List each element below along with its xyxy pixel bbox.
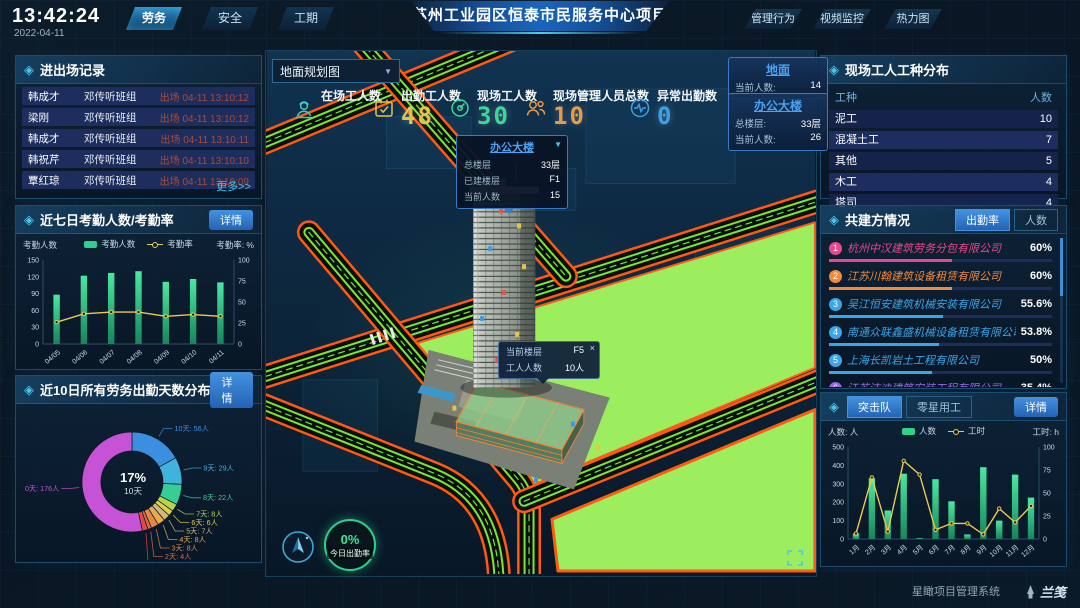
svg-text:7月: 7月 bbox=[943, 543, 956, 556]
today-attendance-rate-badge: 0% 今日出勤率 bbox=[324, 519, 376, 571]
svg-text:60: 60 bbox=[31, 308, 39, 315]
svg-text:04/09: 04/09 bbox=[153, 349, 171, 366]
entry-exit-panel: ◈ 进出场记录 韩成才 邓传听班组 出场 04-11 13:10:12梁刚 邓传… bbox=[15, 55, 262, 199]
svg-text:120: 120 bbox=[27, 274, 39, 281]
svg-text:50: 50 bbox=[1043, 491, 1051, 498]
pulse-icon bbox=[628, 96, 652, 120]
svg-text:12月: 12月 bbox=[1020, 543, 1036, 559]
svg-text:04/05: 04/05 bbox=[44, 349, 62, 366]
svg-text:2月: 2月 bbox=[864, 543, 877, 556]
building-tooltip[interactable]: 办公大楼 ▼ 总楼层33层 已建楼层F1 当前人数15 bbox=[456, 135, 568, 209]
svg-text:10天: 56人: 10天: 56人 bbox=[175, 424, 209, 433]
entry-exit-list: 韩成才 邓传听班组 出场 04-11 13:10:12梁刚 邓传听班组 出场 0… bbox=[16, 87, 261, 189]
attendance-days-title: 近10日所有劳务出勤天数分布 bbox=[40, 380, 210, 399]
entry-exit-more-link[interactable]: 更多>> bbox=[216, 178, 251, 194]
trades-panel: ◈ 现场工人工种分布 工种 人数 泥工10混凝土工7其他5木工4塔司4 bbox=[820, 55, 1067, 199]
trades-table-body: 泥工10混凝土工7其他5木工4塔司4 bbox=[821, 110, 1066, 212]
teams-chart: 010020030040050002550751001月2月3月4月5月6月7月… bbox=[821, 439, 1066, 563]
today-rate-label: 今日出勤率 bbox=[327, 548, 373, 559]
partner-item[interactable]: 6 江苏洁迪建筑安装工程有限公司 35.4% bbox=[829, 380, 1052, 387]
tooltip-value: F1 bbox=[549, 174, 560, 187]
partner-progress bbox=[829, 287, 1052, 290]
partner-value: 35.4% bbox=[1021, 382, 1052, 387]
floor-tooltip[interactable]: × 当前楼层F5 工人人数10人 bbox=[498, 341, 600, 379]
panel-diamond-icon: ◈ bbox=[24, 383, 34, 396]
entry-exit-title: 进出场记录 bbox=[40, 60, 105, 79]
teams-legend: 人数 工时 bbox=[821, 425, 1066, 437]
attendance-panel: ◈ 近七日考勤人数/考勤率 详情 考勤人数 考勤人数 考勤率 考勤率: % 03… bbox=[15, 205, 262, 370]
trades-col-count: 人数 bbox=[1012, 89, 1052, 107]
rank-badge: 2 bbox=[829, 270, 842, 283]
exit-event: 出场 04-11 13:10:12 bbox=[160, 89, 249, 104]
svg-text:0: 0 bbox=[1043, 537, 1047, 544]
logo-text: 兰笺 bbox=[1040, 582, 1066, 601]
worker-name: 韩成才 bbox=[28, 89, 84, 104]
partners-list: 1 杭州中汉建筑劳务分包有限公司 60% 2 江苏川翰建筑设备租赁有限公司 60… bbox=[821, 240, 1066, 387]
svg-text:500: 500 bbox=[832, 445, 844, 452]
compass-icon[interactable] bbox=[280, 529, 316, 565]
system-name: 星瞰项目管理系统 bbox=[912, 583, 1000, 599]
line-legend-swatch bbox=[948, 428, 964, 435]
team-name: 邓传听班组 bbox=[84, 89, 160, 104]
panel-diamond-icon: ◈ bbox=[829, 63, 839, 76]
svg-text:25: 25 bbox=[238, 321, 246, 328]
bar-legend-swatch bbox=[902, 428, 915, 435]
svg-text:1月: 1月 bbox=[848, 543, 861, 556]
tab-labor[interactable]: 劳务 bbox=[126, 7, 182, 30]
team-name: 邓传听班组 bbox=[84, 110, 160, 125]
partner-name: 江苏川翰建筑设备租赁有限公司 bbox=[847, 268, 1025, 284]
tooltip-label: 当前人数 bbox=[464, 190, 500, 203]
stat-value: 0 bbox=[657, 104, 717, 128]
legend-bar-label: 人数 bbox=[919, 425, 936, 437]
partners-panel: ◈ 共建方情况 出勤率 人数 1 杭州中汉建筑劳务分包有限公司 60% 2 江苏… bbox=[820, 205, 1067, 389]
svg-text:4月: 4月 bbox=[895, 543, 908, 556]
brand-logo: 兰笺 bbox=[1024, 582, 1066, 601]
legend-line-label: 工时 bbox=[968, 425, 985, 437]
teams-detail-button[interactable]: 详情 bbox=[1014, 397, 1058, 417]
attendance-chart: 0306090120150025507510004/0504/0604/0704… bbox=[16, 252, 261, 368]
building-card-label: 总楼层: bbox=[735, 116, 766, 130]
attendance-detail-button[interactable]: 详情 bbox=[209, 210, 253, 230]
partner-value: 55.6% bbox=[1021, 298, 1052, 310]
entry-exit-row[interactable]: 梁刚 邓传听班组 出场 04-11 13:10:12 bbox=[22, 108, 255, 126]
gauge-icon bbox=[448, 96, 472, 120]
stat-abnormal-attendance: 异常出勤数0 bbox=[628, 87, 717, 128]
people-icon bbox=[524, 96, 548, 120]
stat-onsite-workers: 在场工人数 bbox=[292, 87, 381, 120]
team-name: 邓传听班组 bbox=[84, 173, 160, 188]
svg-text:04/10: 04/10 bbox=[180, 349, 198, 366]
tab-schedule[interactable]: 工期 bbox=[278, 7, 334, 30]
rank-badge: 6 bbox=[829, 382, 842, 388]
dashboard-root: 13:42:24 2022-04-11 劳务 安全 工期 苏州工业园区恒泰市民服… bbox=[0, 0, 1080, 608]
attendance-days-panel: ◈ 近10日所有劳务出勤天数分布 详情 10天: 56人9天: 29人8天: 2… bbox=[15, 375, 262, 563]
trades-title: 现场工人工种分布 bbox=[845, 60, 949, 79]
worker-name: 韩成才 bbox=[28, 131, 84, 146]
partner-item[interactable]: 2 江苏川翰建筑设备租赁有限公司 60% bbox=[829, 268, 1052, 290]
svg-text:75: 75 bbox=[238, 279, 246, 286]
tooltip-label: 已建楼层 bbox=[464, 174, 500, 187]
svg-text:2天: 4人: 2天: 4人 bbox=[165, 552, 191, 560]
svg-text:6月: 6月 bbox=[927, 543, 940, 556]
chevron-down-icon[interactable]: ▼ bbox=[554, 140, 562, 149]
entry-exit-row[interactable]: 韩成才 邓传听班组 出场 04-11 13:10:11 bbox=[22, 129, 255, 147]
tooltip-label: 工人人数 bbox=[506, 361, 542, 374]
legend-line-label: 考勤率 bbox=[167, 238, 193, 250]
entry-exit-row[interactable]: 韩成才 邓传听班组 出场 04-11 13:10:12 bbox=[22, 87, 255, 105]
trade-row: 混凝土工7 bbox=[829, 131, 1058, 149]
svg-text:30: 30 bbox=[31, 325, 39, 332]
svg-text:300: 300 bbox=[832, 481, 844, 488]
ground-card-title[interactable]: 地面 bbox=[735, 61, 821, 78]
partners-scrollbar[interactable] bbox=[1060, 238, 1063, 383]
page-title: 苏州工业园区恒泰市民服务中心项目 bbox=[400, 1, 680, 31]
svg-text:10月: 10月 bbox=[988, 543, 1004, 559]
partner-name: 吴江恒安建筑机械安装有限公司 bbox=[847, 296, 1016, 312]
tab-safety[interactable]: 安全 bbox=[202, 7, 258, 30]
tooltip-label: 当前楼层 bbox=[506, 345, 542, 358]
plan-view-dropdown[interactable]: 地面规划图 ▼ bbox=[272, 59, 400, 83]
fullscreen-icon[interactable] bbox=[786, 549, 804, 567]
close-icon[interactable]: × bbox=[590, 343, 595, 353]
building-card-value: 33层 bbox=[801, 116, 821, 130]
attendance-y-right-label: 考勤率: % bbox=[216, 239, 254, 251]
svg-text:8天: 22人: 8天: 22人 bbox=[203, 493, 233, 502]
rank-badge: 1 bbox=[829, 242, 842, 255]
calendar-check-icon bbox=[372, 96, 396, 120]
svg-text:200: 200 bbox=[832, 500, 844, 507]
partner-progress bbox=[829, 259, 1052, 262]
tab-video-monitor[interactable]: 视频监控 bbox=[813, 9, 871, 29]
panel-diamond-icon: ◈ bbox=[24, 213, 34, 226]
teams-y-right-label: 工时: h bbox=[1033, 426, 1059, 438]
trades-col-type: 工种 bbox=[835, 89, 1012, 107]
building-card-label: 当前人数: bbox=[735, 132, 776, 146]
exit-event: 出场 04-11 13:10:10 bbox=[160, 152, 249, 167]
partner-item[interactable]: 3 吴江恒安建筑机械安装有限公司 55.6% bbox=[829, 296, 1052, 318]
building-card-title[interactable]: 办公大楼 bbox=[735, 97, 821, 114]
site-map-container: 地面规划图 ▼ 在场工人数 出勤工人数48 现场工人数30 现场管理人员总数10… bbox=[265, 50, 817, 577]
partner-name: 杭州中汉建筑劳务分包有限公司 bbox=[847, 240, 1025, 256]
today-rate-value: 0% bbox=[341, 532, 360, 547]
svg-text:150: 150 bbox=[27, 258, 39, 265]
rank-badge: 3 bbox=[829, 298, 842, 311]
svg-text:100: 100 bbox=[238, 258, 250, 265]
trade-row: 其他5 bbox=[829, 152, 1058, 170]
attendance-days-detail-button[interactable]: 详情 bbox=[210, 372, 253, 408]
partner-item[interactable]: 5 上海长凯岩土工程有限公司 50% bbox=[829, 352, 1052, 374]
svg-text:3月: 3月 bbox=[880, 543, 893, 556]
partner-name: 南通众联鑫盛机械设备租赁有限公司 bbox=[847, 324, 1016, 340]
svg-text:5月: 5月 bbox=[911, 543, 924, 556]
chevron-down-icon: ▼ bbox=[384, 67, 392, 76]
rank-badge: 5 bbox=[829, 354, 842, 367]
partner-progress bbox=[829, 315, 1052, 318]
partner-value: 60% bbox=[1030, 270, 1052, 282]
partner-value: 53.8% bbox=[1021, 326, 1052, 338]
clock-date: 2022-04-11 bbox=[14, 28, 64, 39]
svg-text:0天: 176人: 0天: 176人 bbox=[25, 484, 59, 493]
svg-text:90: 90 bbox=[31, 291, 39, 298]
panel-diamond-icon: ◈ bbox=[829, 400, 839, 413]
exit-event: 出场 04-11 13:10:11 bbox=[160, 131, 249, 146]
worker-name: 覃红琼 bbox=[28, 173, 84, 188]
tooltip-value: 15 bbox=[550, 190, 560, 203]
partner-item[interactable]: 1 杭州中汉建筑劳务分包有限公司 60% bbox=[829, 240, 1052, 262]
worker-name: 韩祝芹 bbox=[28, 152, 84, 167]
partner-progress bbox=[829, 343, 1052, 346]
trade-row: 泥工10 bbox=[829, 110, 1058, 128]
plan-view-value: 地面规划图 bbox=[280, 63, 340, 80]
svg-text:8月: 8月 bbox=[959, 543, 972, 556]
title-underline bbox=[440, 32, 640, 34]
svg-text:100: 100 bbox=[1043, 445, 1055, 452]
building-card-value: 26 bbox=[810, 132, 821, 146]
worker-icon bbox=[292, 96, 316, 120]
partner-name: 江苏洁迪建筑安装工程有限公司 bbox=[847, 380, 1016, 387]
legend-bar-label: 考勤人数 bbox=[101, 238, 135, 250]
exit-event: 出场 04-11 13:10:12 bbox=[160, 110, 249, 125]
entry-exit-row[interactable]: 韩祝芹 邓传听班组 出场 04-11 13:10:10 bbox=[22, 150, 255, 168]
team-name: 邓传听班组 bbox=[84, 131, 160, 146]
partner-value: 50% bbox=[1030, 354, 1052, 366]
ground-card-value: 14 bbox=[810, 80, 821, 94]
logo-icon bbox=[1024, 585, 1037, 599]
partner-progress bbox=[829, 371, 1052, 374]
svg-text:04/11: 04/11 bbox=[208, 349, 226, 365]
svg-text:75: 75 bbox=[1043, 468, 1051, 475]
svg-text:9月: 9月 bbox=[975, 543, 988, 556]
svg-text:04/06: 04/06 bbox=[71, 349, 89, 366]
office-building-card[interactable]: 办公大楼 总楼层:33层 当前人数:26 bbox=[728, 93, 828, 151]
teams-tab-casual[interactable]: 零星用工 bbox=[906, 396, 972, 418]
trade-row: 木工4 bbox=[829, 173, 1058, 191]
teams-panel: ◈ 突击队 零星用工 详情 人数: 人 人数 工时 工时: h 01002003… bbox=[820, 392, 1067, 567]
clock-time: 13:42:24 bbox=[12, 5, 100, 28]
tooltip-label: 总楼层 bbox=[464, 158, 491, 171]
panel-diamond-icon: ◈ bbox=[829, 213, 839, 226]
team-name: 邓传听班组 bbox=[84, 152, 160, 167]
line-legend-swatch bbox=[147, 241, 163, 248]
partner-value: 60% bbox=[1030, 242, 1052, 254]
building-tooltip-title[interactable]: 办公大楼 bbox=[464, 139, 560, 155]
svg-text:100: 100 bbox=[832, 518, 844, 525]
partners-title: 共建方情况 bbox=[845, 210, 910, 229]
svg-text:0: 0 bbox=[238, 342, 242, 349]
partner-name: 上海长凯岩土工程有限公司 bbox=[847, 352, 1025, 368]
svg-text:0: 0 bbox=[840, 537, 844, 544]
tab-management-behavior[interactable]: 管理行为 bbox=[744, 9, 802, 29]
svg-text:50: 50 bbox=[238, 300, 246, 307]
tab-heatmap[interactable]: 热力图 bbox=[884, 9, 942, 29]
tooltip-value: 10人 bbox=[565, 361, 584, 374]
tooltip-value: F5 bbox=[573, 345, 584, 358]
svg-text:04/07: 04/07 bbox=[99, 349, 117, 366]
ground-card-label: 当前人数: bbox=[735, 80, 776, 94]
svg-text:9天: 29人: 9天: 29人 bbox=[203, 463, 233, 472]
svg-text:25: 25 bbox=[1043, 514, 1051, 521]
bar-legend-swatch bbox=[84, 241, 97, 248]
partners-tab-rate[interactable]: 出勤率 bbox=[955, 209, 1010, 231]
attendance-days-donut-chart: 10天: 56人9天: 29人8天: 22人7天: 8人6天: 6人5天: 7人… bbox=[16, 404, 261, 560]
partners-tab-count[interactable]: 人数 bbox=[1014, 209, 1058, 231]
worker-name: 梁刚 bbox=[28, 110, 84, 125]
svg-text:04/08: 04/08 bbox=[126, 349, 144, 366]
panel-diamond-icon: ◈ bbox=[24, 63, 34, 76]
attendance-title: 近七日考勤人数/考勤率 bbox=[40, 210, 174, 229]
trades-table-header: 工种 人数 bbox=[829, 89, 1058, 107]
rank-badge: 4 bbox=[829, 326, 842, 339]
partner-item[interactable]: 4 南通众联鑫盛机械设备租赁有限公司 53.8% bbox=[829, 324, 1052, 346]
svg-text:0: 0 bbox=[35, 342, 39, 349]
svg-text:400: 400 bbox=[832, 463, 844, 470]
tooltip-value: 33层 bbox=[541, 158, 560, 171]
teams-tab-assault[interactable]: 突击队 bbox=[847, 396, 902, 418]
svg-text:11月: 11月 bbox=[1004, 543, 1020, 558]
